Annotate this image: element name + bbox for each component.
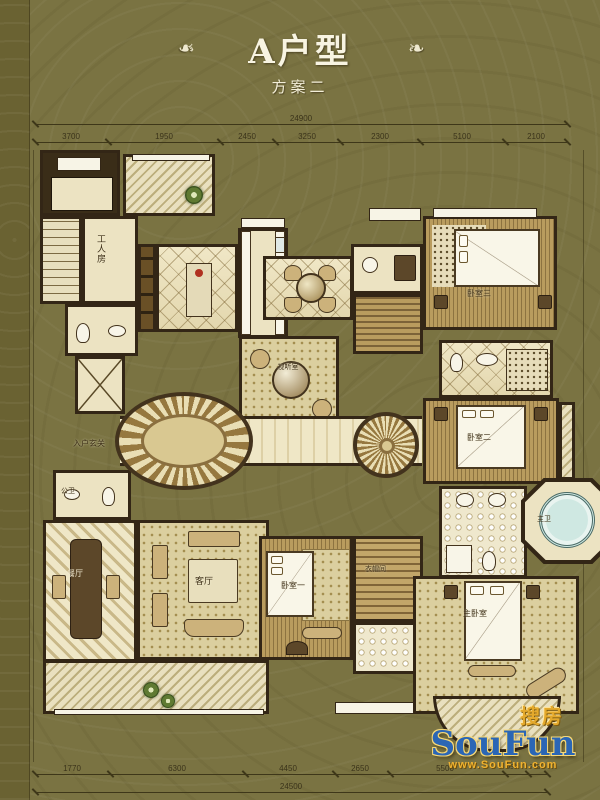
room-label-bedroom3: 卧室三 <box>467 288 491 299</box>
room-label-public-bath: 公卫 <box>61 486 75 496</box>
window <box>369 208 421 221</box>
elevator-x-icon <box>78 359 122 411</box>
fan-medallion <box>353 412 419 478</box>
bedroom-3 <box>423 216 557 330</box>
utility-floor <box>51 177 113 211</box>
sink-icon <box>108 325 126 337</box>
chair-icon <box>284 297 302 313</box>
window <box>433 208 537 218</box>
toilet-icon <box>450 353 463 372</box>
counter <box>241 231 251 335</box>
dim-seg-label: 3250 <box>287 132 327 141</box>
bench-icon <box>302 627 342 639</box>
pillow-icon <box>490 586 504 595</box>
dim-seg-label: 2450 <box>227 132 267 141</box>
floorplan-page: ❧ A户型 ❧ 方案二 24900 3700 1950 2450 3250 23… <box>0 0 600 800</box>
pillow-icon <box>459 251 468 263</box>
dim-overall-label: 24500 <box>261 782 321 791</box>
table-icon <box>286 641 308 655</box>
room-label-av: 视听室 <box>270 362 306 372</box>
room-label-master-bath: 主卫 <box>537 514 551 524</box>
plant-icon <box>161 694 175 708</box>
foyer-medallion-center <box>141 414 227 468</box>
pillow-icon <box>480 410 494 418</box>
chair-icon <box>106 575 120 599</box>
sofa-icon <box>188 531 240 547</box>
pillow-icon <box>470 586 484 595</box>
nightstand-icon <box>538 295 552 309</box>
staircase <box>40 216 82 304</box>
dim-overall-label: 24900 <box>271 114 331 123</box>
room-label-dining: 餐厅 <box>67 568 83 579</box>
sink-icon <box>275 237 285 253</box>
nightstand-icon <box>534 407 548 421</box>
tub-bay <box>521 478 600 564</box>
room-label-foyer: 入户玄关 <box>57 438 121 449</box>
page-subtitle: 方案二 <box>0 76 600 97</box>
cabinet <box>394 255 416 281</box>
round-table-icon <box>296 273 326 303</box>
sink-icon <box>456 493 474 507</box>
kitchen-island <box>186 263 212 317</box>
dim-seg-label: 2100 <box>516 132 556 141</box>
dim-seg-label: 2300 <box>360 132 400 141</box>
west-kitchen <box>156 244 238 332</box>
cooktop-icon <box>195 269 203 277</box>
pillow-icon <box>271 556 283 564</box>
worker-room <box>82 216 138 304</box>
dim-line <box>35 124 568 125</box>
armchair-icon <box>250 349 270 369</box>
room-label-cloakroom: 衣帽间 <box>365 564 386 574</box>
dim-seg-label: 4450 <box>268 764 308 773</box>
pillow-icon <box>271 567 283 575</box>
right-dim-line <box>583 150 584 762</box>
service-bath <box>65 304 138 356</box>
laundry-room <box>351 244 423 294</box>
master-bedroom <box>413 576 579 714</box>
pantry-cabinets <box>138 244 156 332</box>
toilet-icon <box>482 551 496 571</box>
nightstand-icon <box>526 585 540 599</box>
washer-icon <box>362 257 378 273</box>
armchair-icon <box>152 545 168 579</box>
plant-icon <box>185 186 203 204</box>
sink-icon <box>488 493 506 507</box>
utility-block <box>40 150 120 216</box>
floorplan: 工人房 <box>35 150 575 765</box>
nightstand-icon <box>444 585 458 599</box>
room-label-living: 客厅 <box>195 574 213 587</box>
elevator <box>75 356 125 414</box>
shower-tray <box>446 545 472 573</box>
shower-icon <box>506 349 548 391</box>
living-room <box>137 520 269 660</box>
master-bath <box>439 486 527 578</box>
nightstand-icon <box>434 407 448 421</box>
breakfast-nook <box>263 256 353 320</box>
dim-seg-label: 2650 <box>340 764 380 773</box>
right-flourish-icon: ❧ <box>408 36 425 61</box>
window <box>54 709 264 715</box>
dim-line <box>35 142 568 143</box>
soufun-url[interactable]: www.SouFun.com <box>428 759 578 771</box>
room-label-worker: 工人房 <box>95 234 108 264</box>
bench-icon <box>468 665 516 677</box>
dim-line <box>35 792 548 793</box>
foyer-medallion <box>115 392 253 490</box>
nightstand-icon <box>434 295 448 309</box>
left-dim-line <box>33 150 34 762</box>
soufun-watermark[interactable]: 搜房 SouFun www.SouFun.com <box>428 700 578 771</box>
bay-window <box>559 402 575 480</box>
dim-seg-label: 1950 <box>144 132 184 141</box>
fan-medallion-center <box>379 438 395 454</box>
pillow-icon <box>462 410 476 418</box>
armchair-icon <box>152 593 168 627</box>
closet-corridor <box>353 294 423 354</box>
plant-icon <box>143 682 159 698</box>
dining-room <box>43 520 137 662</box>
room-label-bedroom1: 卧室一 <box>281 580 305 591</box>
left-ornament-strip <box>0 0 30 800</box>
dining-table <box>70 539 102 639</box>
bed-icon <box>454 229 540 287</box>
window <box>241 218 285 228</box>
chair-icon <box>52 575 66 599</box>
toilet-icon <box>76 323 90 343</box>
sink-icon <box>476 353 498 366</box>
bedroom-1 <box>259 536 353 660</box>
window <box>132 154 210 161</box>
page-title: A户型 <box>0 24 600 73</box>
pillow-icon <box>459 235 468 247</box>
room-label-master-bedroom: 主卧室 <box>463 608 487 619</box>
bath-3 <box>439 340 553 398</box>
dim-seg-label: 5100 <box>442 132 482 141</box>
bed-icon <box>464 581 522 661</box>
soufun-logo: SouFun <box>428 729 578 759</box>
top-dimensions: 24900 3700 1950 2450 3250 2300 5100 2100 <box>35 112 568 148</box>
dim-seg-label: 3700 <box>51 132 91 141</box>
toilet-icon <box>102 487 115 506</box>
room-label-bedroom2: 卧室二 <box>467 432 491 443</box>
sofa-icon <box>184 619 244 637</box>
bedroom-2 <box>423 398 559 484</box>
balcony-top-left <box>123 154 215 216</box>
dim-seg-label: 1770 <box>52 764 92 773</box>
window <box>57 157 101 171</box>
dim-seg-label: 6300 <box>157 764 197 773</box>
